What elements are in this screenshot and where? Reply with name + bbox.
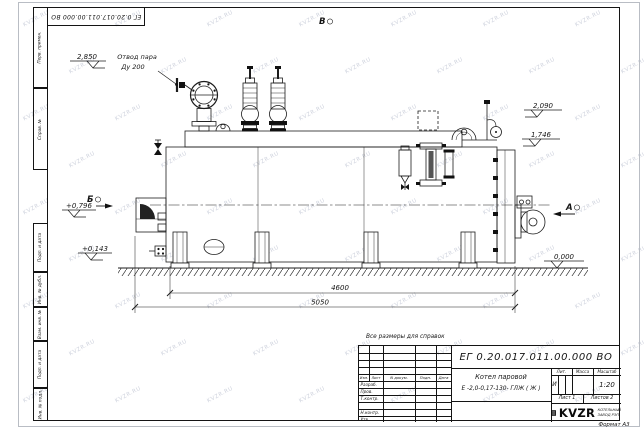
burner [515,196,545,238]
tb-lit-label: Лит. [551,368,572,375]
dimension-overall-length: 5050 [311,299,329,307]
company-tagline-line1: КОТЕЛЬНЫЙ [598,408,621,412]
dimension-inner-length: 4600 [331,284,349,292]
tb-col-list: Лист [369,374,383,381]
view-marker-top-circle-icon [327,19,332,24]
view-marker-left-circle-icon [95,197,100,202]
tb-col-podp: Подп. [415,374,436,381]
small-top-valve [154,140,162,155]
tb-sheet-no: Лист 1 [551,394,583,403]
pressure-gauge-assembly [484,100,502,140]
tb-row-tkontr: Т.контр. [359,395,383,402]
view-marker-right-circle-icon [574,205,579,210]
callout-steam-outlet-line1: Отвод пара [117,53,157,61]
view-marker-left: Б [87,195,94,205]
elevation-marks [62,61,584,268]
elevation-steam-outlet: 2,850 [77,53,98,61]
tb-lit-value: И [551,375,558,394]
ground-hatching [118,268,588,276]
company-tagline: КОТЕЛЬНЫЙ ЗАВОД РЭП [598,408,621,417]
drawing-sheet: KVZR.RUKVZR.RUKVZR.RUKVZR.RUKVZR.RUKVZR.… [0,0,644,430]
tb-col-data: Дата [436,374,451,381]
elevation-casing-top: 1,746 [531,131,552,139]
tb-col-dokum: N докум. [383,374,415,381]
lifting-lug [452,128,476,140]
tb-row-nkontr: Н.контр. [359,409,383,416]
safety-valve-2 [269,66,287,132]
kvzr-logo-icon [551,407,556,419]
gauge-glass [416,143,455,186]
tb-row-utv: Утв. [359,416,383,422]
support-legs [171,232,477,268]
view-marker-right: А [565,203,573,213]
title-block: Изм. Лист N докум. Подп. Дата Разраб. Пр… [358,345,620,421]
format-note: Формат А3 [578,422,644,428]
safety-valve-1 [241,66,259,132]
elevation-front-lower: +0,143 [82,245,108,253]
tb-scale-label: Масштаб [593,368,621,375]
company-tagline-line2: ЗАВОД РЭП [598,413,619,417]
manhole-oval [204,240,224,255]
tb-scale-value: 1:20 [593,375,621,394]
view-marker-top: В [319,17,325,27]
elevation-ground: 0,000 [554,253,575,261]
reference-note: Все размеры для справок [366,334,445,340]
kvzr-logo-text: KVZR [559,406,595,420]
tb-designation: ЕГ 0.20.017.011.00.000 ВО [451,346,621,368]
tb-row-razrab: Разраб. [359,381,383,388]
drum-lug [216,124,230,131]
view-arrow-left-icon [96,204,113,209]
tb-company-cell: KVZR КОТЕЛЬНЫЙ ЗАВОД РЭП [551,403,621,422]
steam-outlet-callout [158,71,178,86]
elevation-boiler-top: 2,090 [533,102,554,110]
front-fan-box [136,198,166,256]
callout-steam-outlet-line2: Ду 200 [120,63,144,71]
hidden-component-dashed [418,111,438,130]
tb-product-type: Е -2,0-0,17-130- ГЛЖ ( Ж ) [451,382,551,396]
steam-outlet-valve [177,78,218,131]
tb-col-izm: Изм. [359,374,369,381]
tb-row-prov: Пров. [359,388,383,395]
tb-mass-label: Масса [572,368,593,375]
water-level-column [399,146,411,190]
tb-sheets-total: Листов 2 [583,394,621,403]
